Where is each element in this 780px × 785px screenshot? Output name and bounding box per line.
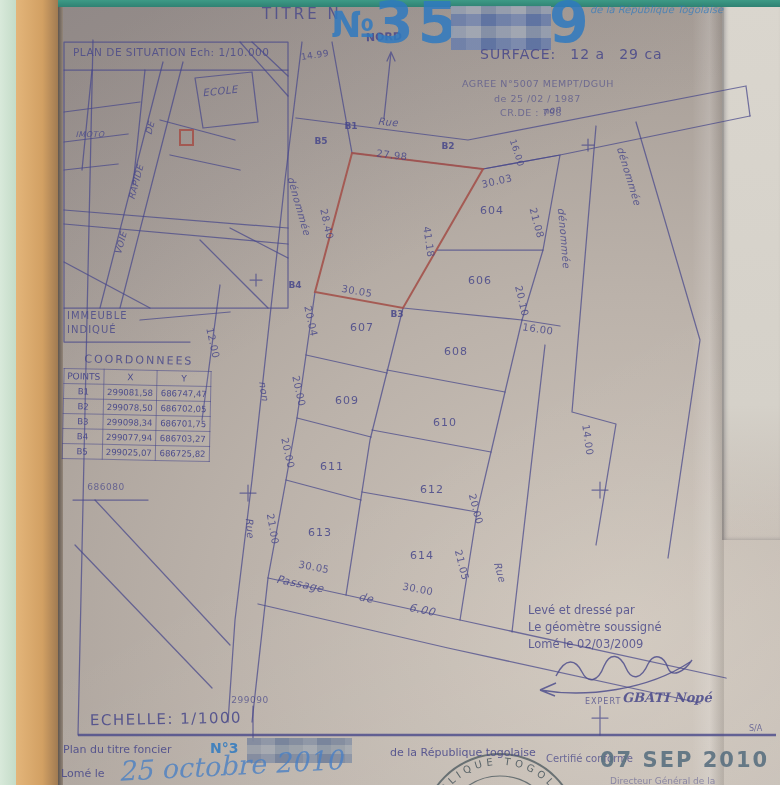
surface-ref-line3: CR.DE : 798 bbox=[500, 107, 562, 118]
parcel-608: 608 bbox=[444, 345, 468, 358]
surface-row: SURFACE:12 a29 ca bbox=[480, 46, 677, 62]
coords-cell: 686703,27 bbox=[156, 430, 210, 446]
parcel-611: 611 bbox=[320, 460, 344, 473]
document-content: UBLIQUE TOGOL ECOLEIMOTOVOIERAPIDEDENORD… bbox=[0, 0, 780, 785]
coords-cell: 686747,47 bbox=[157, 385, 211, 401]
coords-cell: 299098,34 bbox=[102, 414, 156, 430]
situation-plan-title: PLAN DE SITUATION Ech: 1/10.000 bbox=[73, 46, 269, 58]
svg-text:UBLIQUE TOGOL: UBLIQUE TOGOL bbox=[432, 756, 559, 785]
grid-686080: 686080 bbox=[87, 482, 124, 492]
surveyor-name: GBATI Nopé bbox=[622, 690, 712, 705]
corner-b1: B1 bbox=[344, 121, 357, 131]
coords-cell: B5 bbox=[62, 443, 102, 459]
parcel-609: 609 bbox=[335, 394, 359, 407]
title-right-stamp-text: de la République Togolaise bbox=[590, 4, 723, 15]
parcel-606: 606 bbox=[468, 274, 492, 287]
coords-header-cell: Y bbox=[157, 370, 211, 386]
redaction-mosaic-title bbox=[451, 6, 551, 50]
surface-ref-line2: de 25 /02 / 1987 bbox=[494, 93, 581, 104]
parcel-612: 612 bbox=[420, 483, 444, 496]
surface-ref-line1: AGREE N°5007 MEMPT/DGUH bbox=[462, 78, 614, 89]
grid-299090: 299090 bbox=[231, 695, 268, 705]
surface-label: SURFACE: bbox=[480, 46, 556, 62]
surveyor-line2: Le géomètre soussigné bbox=[528, 619, 662, 636]
street-rue-top: Rue bbox=[377, 116, 398, 129]
document-title: TITRE N bbox=[262, 5, 342, 23]
parcel-613: 613 bbox=[308, 526, 332, 539]
corner-b4: B4 bbox=[288, 280, 301, 290]
director-label: Directeur Général de la bbox=[610, 776, 715, 785]
coords-cell: B1 bbox=[64, 384, 104, 400]
coords-cell: 686725,82 bbox=[156, 445, 210, 461]
coordinates-table: COORDONNEES POINTSXY B1299081,58686747,4… bbox=[62, 352, 214, 462]
footer-republic-label: de la République togolaise bbox=[390, 746, 536, 759]
inset-label-imoto: IMOTO bbox=[75, 130, 104, 139]
surface-value-ca: 29 ca bbox=[619, 46, 663, 62]
corner-b2: B2 bbox=[441, 141, 454, 151]
inset-map-drawing bbox=[64, 42, 288, 342]
coords-cell: 299081,58 bbox=[103, 384, 157, 400]
street-passage-de: de bbox=[357, 590, 374, 606]
coords-cell: 299078,50 bbox=[103, 399, 157, 415]
corner-b3: B3 bbox=[390, 309, 403, 319]
immeuble-label-line1: IMMEUBLE bbox=[67, 310, 128, 321]
coordinates-table-title: COORDONNEES bbox=[64, 352, 214, 368]
title-number-stamp-symbol: № bbox=[331, 4, 374, 45]
coords-cell: 686702,05 bbox=[156, 400, 210, 416]
surveyor-title: EXPERT bbox=[585, 697, 621, 706]
coords-header-cell: POINTS bbox=[64, 369, 104, 385]
coords-cell: 299077,94 bbox=[102, 429, 156, 445]
immeuble-label-line2: INDIQUÉ bbox=[67, 324, 117, 335]
corner-b5: B5 bbox=[314, 136, 327, 146]
sa-corner-label: S/A bbox=[749, 724, 762, 733]
coords-cell: B2 bbox=[63, 399, 103, 415]
coords-cell: B3 bbox=[63, 413, 103, 429]
surveyor-line3: Lomé le 02/03/2009 bbox=[528, 636, 662, 653]
parcel-610: 610 bbox=[433, 416, 457, 429]
surface-value-a: 12 a bbox=[570, 46, 605, 62]
surveyor-line1: Levé et dressé par bbox=[528, 602, 662, 619]
surveyor-block: Levé et dressé par Le géomètre soussigné… bbox=[528, 602, 662, 653]
round-stamp-arc-text: UBLIQUE TOGOL bbox=[432, 756, 559, 785]
date-stamp: 07 SEP 2010 bbox=[600, 748, 769, 772]
street-rue-left: Rue bbox=[244, 517, 256, 538]
parcel-604: 604 bbox=[480, 204, 504, 217]
coords-cell: 686701,75 bbox=[156, 415, 210, 431]
coords-cell: 299025,07 bbox=[102, 444, 156, 460]
coords-header-cell: X bbox=[103, 369, 157, 385]
footer-lome-le-label: Lomé le bbox=[61, 767, 104, 780]
title-number-stamp-value: 35 bbox=[374, 0, 461, 56]
scanned-land-title-plan: UBLIQUE TOGOL ECOLEIMOTOVOIERAPIDEDENORD… bbox=[0, 0, 780, 785]
parcel-607: 607 bbox=[350, 321, 374, 334]
parcel-614: 614 bbox=[410, 549, 434, 562]
scale-label: ECHELLE: 1/1000 bbox=[90, 709, 242, 730]
coords-row: B5299025,07686725,82 bbox=[62, 443, 209, 461]
coords-cell: B4 bbox=[63, 428, 103, 444]
